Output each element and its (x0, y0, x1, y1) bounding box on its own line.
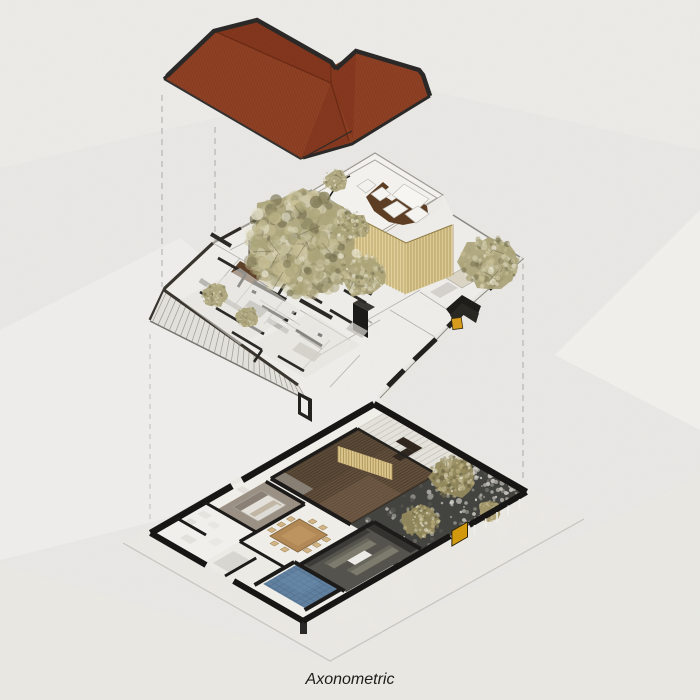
svg-text:Axonometric: Axonometric (305, 671, 395, 688)
